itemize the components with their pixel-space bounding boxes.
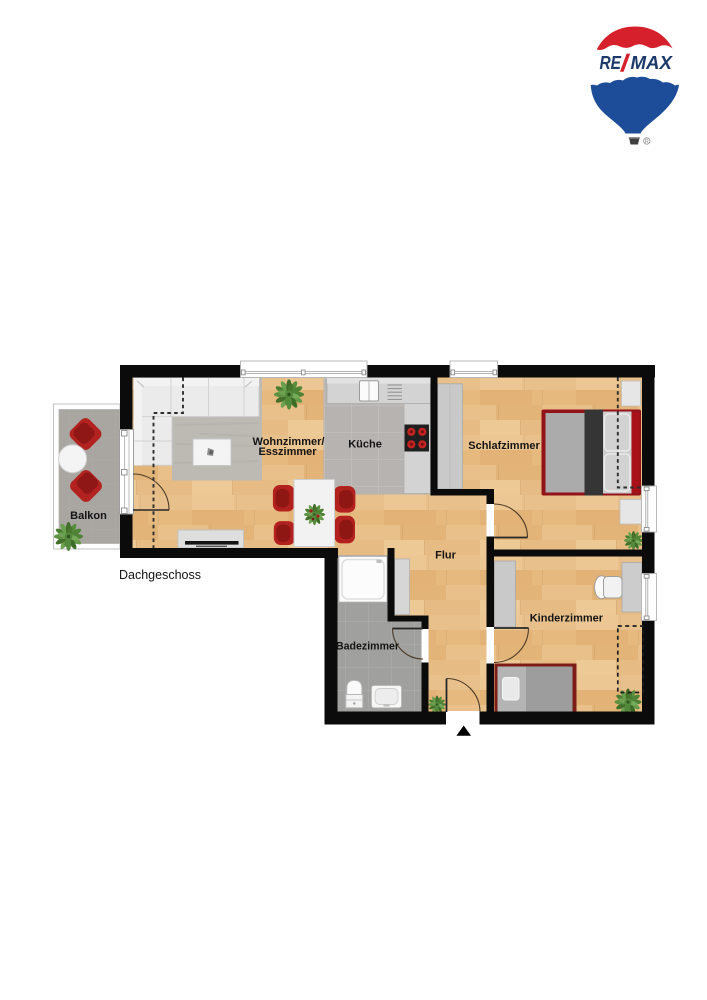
svg-text:RE: RE: [600, 52, 622, 73]
svg-text:Esszimmer: Esszimmer: [258, 446, 317, 458]
svg-text:Küche: Küche: [348, 439, 382, 451]
svg-text:R: R: [645, 139, 649, 145]
svg-text:Badezimmer: Badezimmer: [336, 640, 399, 652]
svg-text:MAX: MAX: [631, 52, 674, 73]
svg-text:Flur: Flur: [435, 550, 456, 562]
svg-text:Kinderzimmer: Kinderzimmer: [530, 613, 604, 625]
svg-text:Dachgeschoss: Dachgeschoss: [119, 568, 201, 582]
svg-text:Balkon: Balkon: [70, 510, 107, 522]
svg-text:Schlafzimmer: Schlafzimmer: [468, 440, 540, 452]
